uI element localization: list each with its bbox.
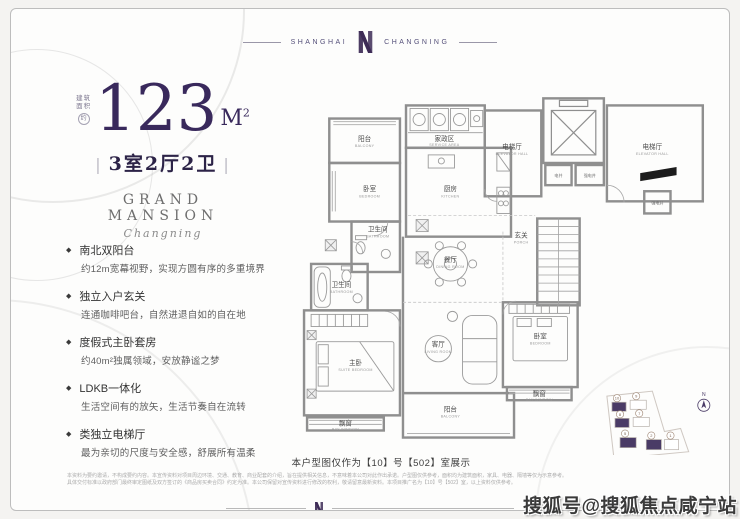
plan-caption: 本户型图仅作为【10】号【502】室展示 [281, 455, 481, 469]
divider [243, 42, 281, 43]
building-9 [630, 400, 646, 409]
divider [332, 508, 514, 509]
svg-text:N: N [702, 392, 706, 398]
diamond-bullet-icon: ◆ [66, 384, 71, 392]
room-label: ELEVATOR HALL [636, 152, 669, 156]
room-label: 电井 [554, 172, 562, 178]
feature-item: ◆类独立电梯厅 最为亲切的尺度与安全感，舒展所有温柔 [66, 426, 281, 459]
diamond-bullet-icon: ◆ [66, 292, 71, 300]
poster-card: SHANGHAI CHANGNING 建筑 面积 约 123 M2 |3室 [10, 8, 730, 511]
room-label: 卧室 [534, 332, 548, 341]
brand-left-label: SHANGHAI [291, 39, 348, 46]
room-label: 阳台 [358, 134, 372, 143]
elevator-shaft [551, 100, 595, 155]
windows [309, 122, 569, 437]
area-value: 123 [95, 79, 217, 139]
room-label: BALCONY [441, 414, 461, 418]
room-label: PORCH [514, 241, 529, 245]
brand-script: Changning [63, 227, 263, 240]
room-label: 飘窗 [339, 418, 353, 427]
room-label: 玄关 [515, 231, 529, 240]
room-label: ELEVATOR HALL [496, 152, 529, 156]
room-label: BEDROOM [530, 342, 551, 346]
room-label: BATHROOM [366, 235, 389, 239]
room-label: 电梯厅 [502, 142, 522, 151]
room-label: 强电井 [651, 199, 663, 205]
feature-item: ◆度假式主卧套房 约40m²独属领域，安放静谧之梦 [66, 334, 281, 367]
footer-monogram-icon [314, 501, 324, 511]
headline-block: 建筑 面积 约 123 M2 |3室2厅2卫| GRAND MANSION Ch… [63, 79, 263, 240]
room-label: BAY WINDOW [332, 427, 359, 431]
layout-text: |3室2厅2卫| [63, 149, 263, 176]
room-label: 卫生间 [332, 280, 352, 289]
room-label: 卫生间 [368, 225, 388, 234]
brand-right-label: CHANGNING [384, 39, 449, 46]
area-unit: M2 [220, 106, 250, 131]
room-label: 飘窗 [533, 389, 547, 398]
room-label: 阳台 [444, 404, 458, 413]
building-5 [620, 438, 636, 448]
furniture [311, 108, 569, 391]
divider [459, 42, 497, 43]
approx-badge: 约 [78, 113, 90, 125]
room-label: 电梯厅 [643, 142, 663, 151]
room-label: SUITE BEDROOM [338, 368, 372, 372]
room-label: SERVICE AREA [429, 143, 459, 147]
feature-list: ◆南北双阳台 约12m宽幕视野，实现方圆有序的多重境界 ◆独立入户玄关 连通咖啡… [66, 242, 281, 472]
room-label: BALCONY [355, 144, 375, 148]
area-label: 建筑 面积 约 [76, 95, 91, 125]
disclaimer: 本资料为要约邀请，不构成要约内容。本宣传资料对项目周边环境、交通、教育、商业配套… [67, 473, 673, 487]
room-label: KITCHEN [441, 194, 459, 198]
svg-text:10: 10 [615, 396, 620, 401]
floor-plan: 阳台 BALCONY 卧室 BEDROOM 卫生间 BATHROOM 卫生间 B… [299, 89, 723, 455]
brand-header: SHANGHAI CHANGNING [11, 29, 729, 55]
room-label: LIVING ROOM [425, 350, 453, 354]
building-2 [646, 440, 661, 450]
feature-item: ◆南北双阳台 约12m宽幕视野，实现方圆有序的多重境界 [66, 242, 281, 275]
room-label: DINING ROOM [436, 265, 464, 269]
feature-item: ◆独立入户玄关 连通咖啡吧台，自然进退自如的自在地 [66, 288, 281, 321]
brand-en: GRAND MANSION [63, 192, 263, 224]
room-label: 主卧 [349, 358, 363, 367]
room-label: 强电井 [584, 172, 596, 178]
doors [351, 185, 624, 326]
building-8 [615, 418, 629, 427]
brand-monogram-icon [357, 29, 374, 55]
north-compass-icon: N [698, 392, 710, 411]
room-label: 厨房 [444, 184, 458, 193]
room-label: BATHROOM [330, 290, 353, 294]
room-label: 客厅 [432, 340, 446, 349]
room-label: 餐厅 [444, 255, 458, 264]
diamond-bullet-icon: ◆ [66, 338, 71, 346]
building-1 [664, 440, 678, 450]
room-label: 卧室 [363, 184, 377, 193]
room-labels: 阳台 BALCONY 卧室 BEDROOM 卫生间 BATHROOM 卫生间 B… [330, 134, 669, 432]
stairs [537, 218, 579, 305]
room-label: BEDROOM [359, 194, 380, 198]
diamond-bullet-icon: ◆ [66, 246, 71, 254]
watermark: 搜狐号@搜狐焦点咸宁站 [523, 491, 737, 518]
page: SHANGHAI CHANGNING 建筑 面积 约 123 M2 |3室 [0, 0, 740, 519]
cabinet-wedge [640, 167, 676, 181]
building-10 [612, 402, 626, 411]
room-label: 家政区 [435, 134, 455, 143]
site-map: 10 9 8 7 5 2 1 [607, 391, 710, 455]
building-7 [633, 417, 649, 426]
feature-item: ◆LDKB一体化 生活空间有的放矢，生活节奏自在流转 [66, 380, 281, 413]
diamond-bullet-icon: ◆ [66, 430, 71, 438]
divider [226, 508, 306, 509]
room-label: BAY WINDOW [526, 398, 553, 402]
